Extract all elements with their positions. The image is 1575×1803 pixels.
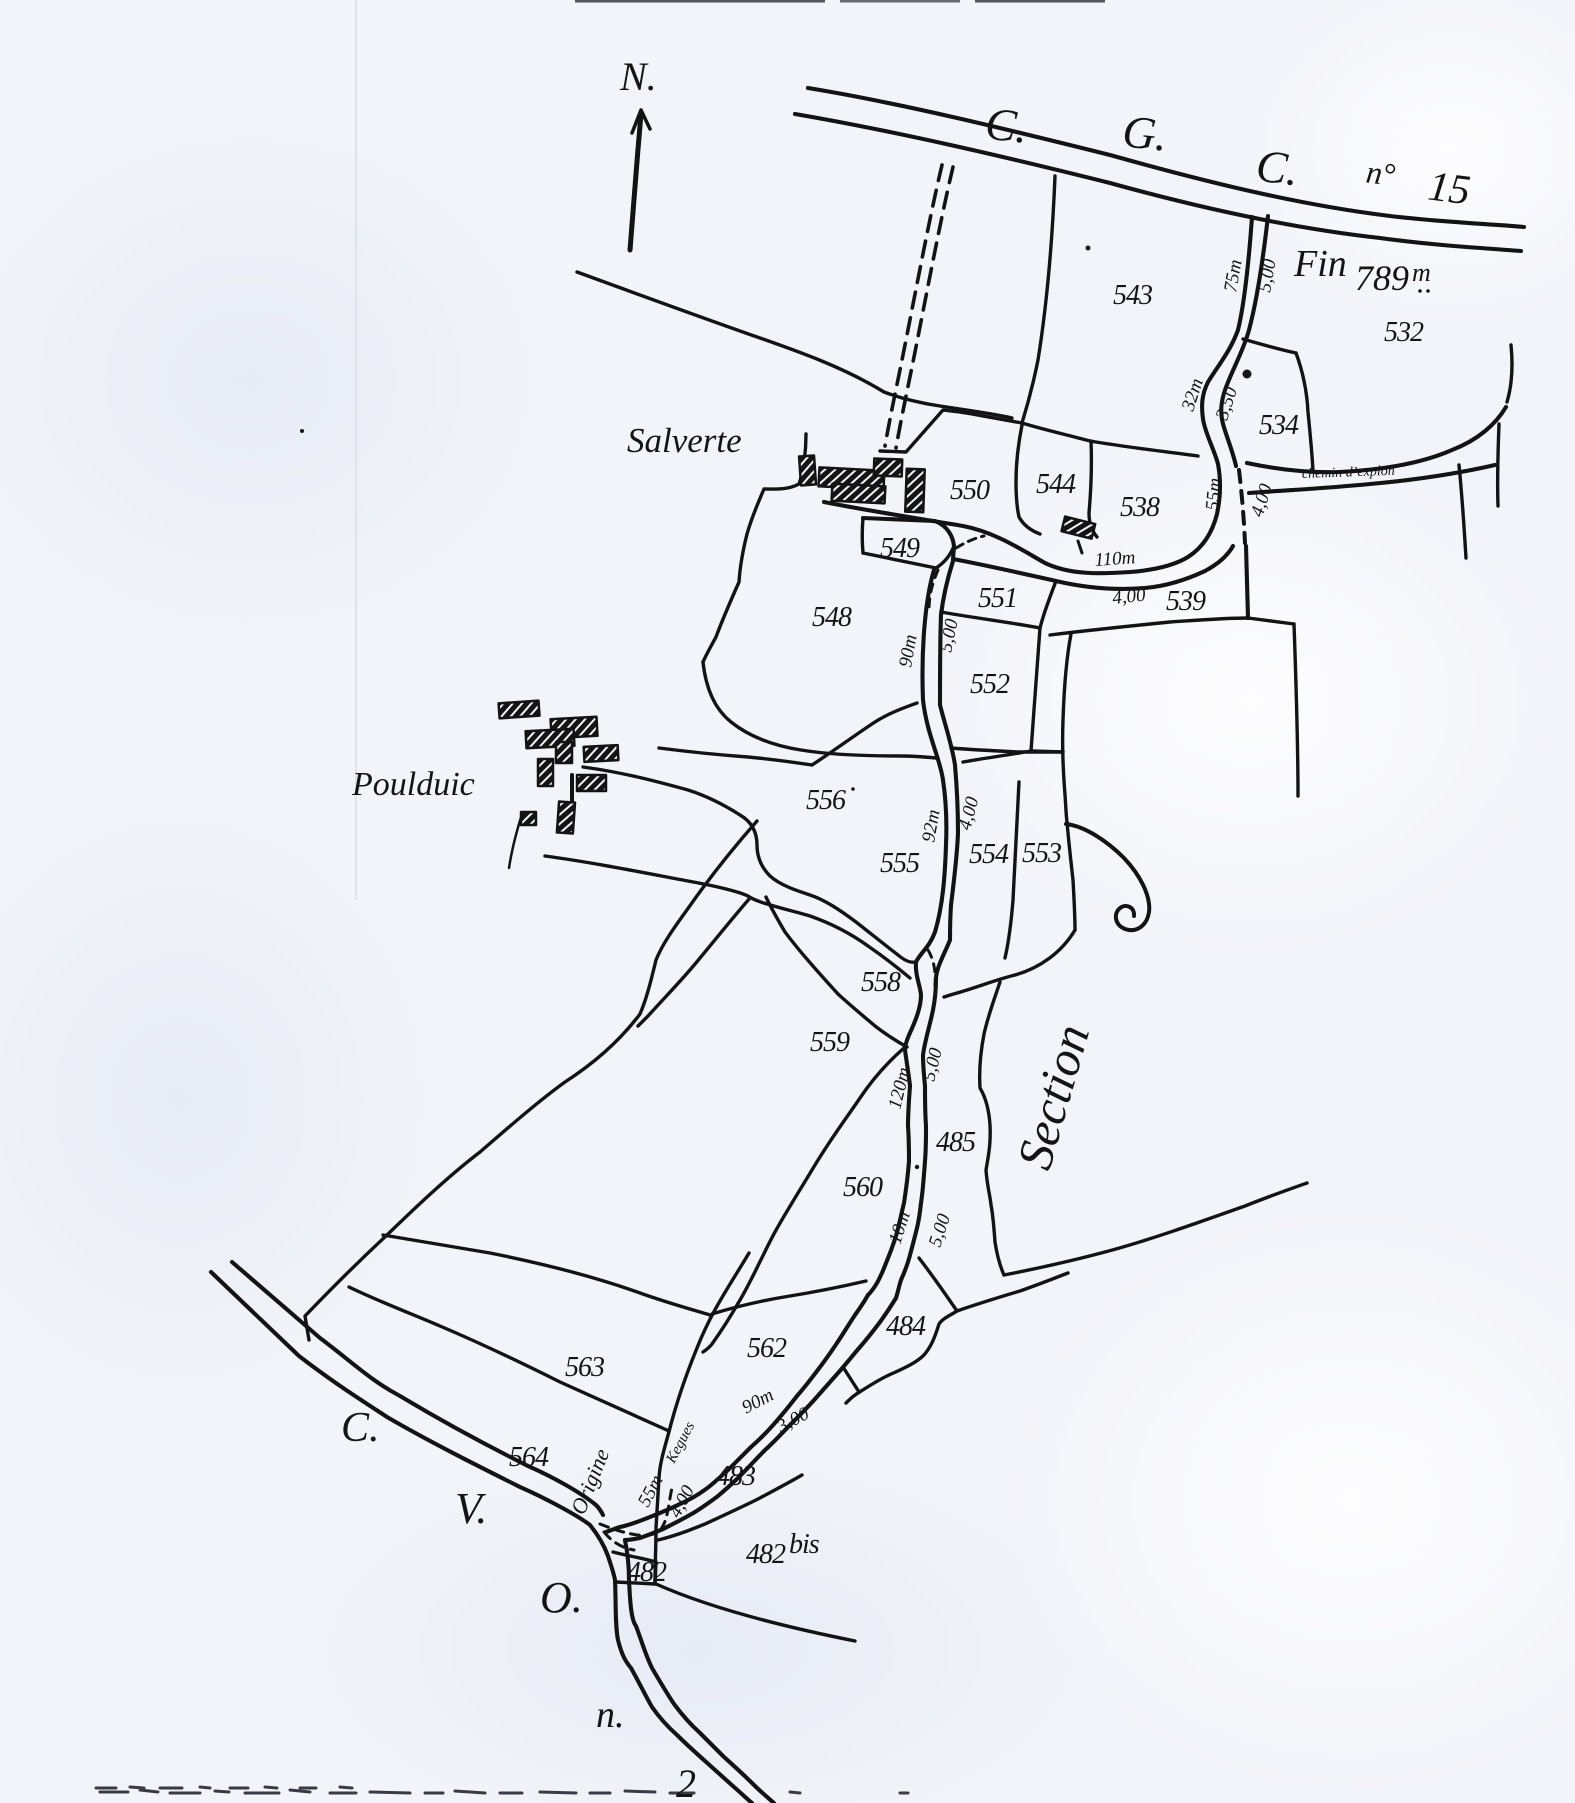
svg-text:n°: n° [1364, 153, 1397, 192]
svg-text:563: 563 [565, 1352, 605, 1383]
svg-text:543: 543 [1113, 280, 1153, 311]
svg-text:559: 559 [810, 1027, 850, 1058]
svg-text:552: 552 [970, 669, 1010, 700]
svg-text:4,00: 4,00 [1111, 585, 1147, 609]
svg-text:549: 549 [880, 533, 920, 564]
svg-text:Salverte: Salverte [627, 421, 742, 460]
svg-text:2: 2 [676, 1761, 696, 1803]
svg-text:532: 532 [1384, 317, 1424, 348]
svg-text:554: 554 [969, 839, 1009, 870]
svg-text:O.: O. [540, 1573, 583, 1622]
svg-text:538: 538 [1120, 492, 1160, 523]
svg-text:548: 548 [812, 602, 852, 633]
svg-text:Poulduic: Poulduic [351, 766, 475, 803]
svg-text:789: 789 [1355, 258, 1409, 298]
svg-text:553: 553 [1022, 838, 1062, 869]
svg-text:558: 558 [861, 967, 901, 998]
svg-text:C.: C. [341, 1405, 380, 1451]
svg-text:482: 482 [746, 1539, 786, 1570]
svg-text:556: 556 [806, 785, 846, 816]
svg-text:544: 544 [1036, 469, 1076, 500]
svg-text:C.: C. [1253, 140, 1301, 196]
svg-text:C.: C. [983, 98, 1030, 153]
svg-text:55m: 55m [1202, 477, 1226, 511]
svg-text:534: 534 [1259, 410, 1299, 441]
svg-text:Fin: Fin [1293, 243, 1347, 285]
svg-text:562: 562 [747, 1333, 787, 1364]
svg-text:482: 482 [627, 1557, 667, 1588]
svg-text:bis: bis [789, 1529, 820, 1560]
svg-text:m: m [1412, 258, 1431, 287]
svg-text:551: 551 [978, 583, 1017, 614]
svg-text:550: 550 [950, 475, 990, 506]
svg-text:539: 539 [1166, 586, 1206, 617]
svg-text:15: 15 [1425, 163, 1472, 214]
svg-text:564: 564 [509, 1442, 549, 1473]
svg-text:G.: G. [1120, 105, 1170, 160]
svg-text:V.: V. [455, 1484, 487, 1533]
svg-text:560: 560 [843, 1172, 883, 1203]
svg-text:N.: N. [619, 54, 657, 99]
svg-text:485: 485 [936, 1127, 976, 1158]
svg-text:555: 555 [880, 848, 920, 879]
svg-text:483: 483 [716, 1461, 756, 1492]
svg-text:n.: n. [596, 1694, 625, 1736]
svg-text:110m: 110m [1094, 547, 1136, 571]
svg-text:484: 484 [886, 1311, 926, 1342]
